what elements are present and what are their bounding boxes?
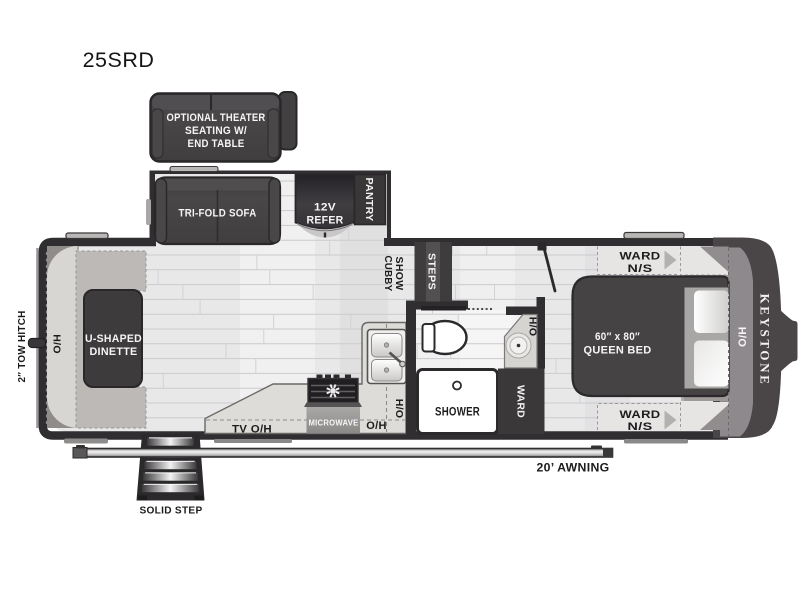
svg-text:WARD: WARD bbox=[515, 385, 527, 418]
svg-text:SEATING W/: SEATING W/ bbox=[185, 125, 247, 137]
svg-text:WARD: WARD bbox=[620, 409, 661, 421]
svg-text:QUEEN BED: QUEEN BED bbox=[584, 345, 652, 357]
svg-text:25SRD: 25SRD bbox=[83, 48, 155, 72]
svg-text:20’ AWNING: 20’ AWNING bbox=[537, 463, 610, 475]
svg-text:DINETTE: DINETTE bbox=[90, 346, 138, 358]
svg-text:REFER: REFER bbox=[307, 215, 344, 227]
svg-text:PANTRY: PANTRY bbox=[363, 178, 375, 222]
svg-text:SHOWER: SHOWER bbox=[435, 407, 480, 419]
svg-text:12V: 12V bbox=[314, 202, 336, 214]
svg-text:N/S: N/S bbox=[628, 263, 653, 275]
svg-text:2″ TOW HITCH: 2″ TOW HITCH bbox=[16, 311, 28, 383]
svg-text:H/O: H/O bbox=[51, 334, 63, 354]
svg-text:N/S: N/S bbox=[628, 421, 653, 433]
svg-text:END TABLE: END TABLE bbox=[188, 138, 245, 150]
svg-text:60″ x 80″: 60″ x 80″ bbox=[595, 331, 640, 343]
svg-text:OPTIONAL THEATER: OPTIONAL THEATER bbox=[167, 112, 266, 124]
svg-text:CUBBY: CUBBY bbox=[382, 256, 393, 292]
svg-text:H/O: H/O bbox=[393, 399, 405, 419]
svg-text:KEYSTONE: KEYSTONE bbox=[758, 294, 773, 387]
svg-text:O/H: O/H bbox=[366, 420, 386, 432]
svg-text:SHOW: SHOW bbox=[393, 257, 404, 291]
svg-text:WARD: WARD bbox=[620, 251, 661, 263]
svg-text:TRI-FOLD SOFA: TRI-FOLD SOFA bbox=[179, 208, 257, 220]
svg-text:U-SHAPED: U-SHAPED bbox=[85, 333, 142, 345]
svg-text:MICROWAVE: MICROWAVE bbox=[309, 418, 359, 428]
svg-text:TV O/H: TV O/H bbox=[232, 424, 272, 436]
svg-text:STEPS: STEPS bbox=[426, 253, 438, 290]
svg-text:H/O: H/O bbox=[736, 327, 748, 348]
svg-text:H/O: H/O bbox=[527, 317, 539, 337]
svg-text:SOLID STEP: SOLID STEP bbox=[140, 505, 203, 517]
